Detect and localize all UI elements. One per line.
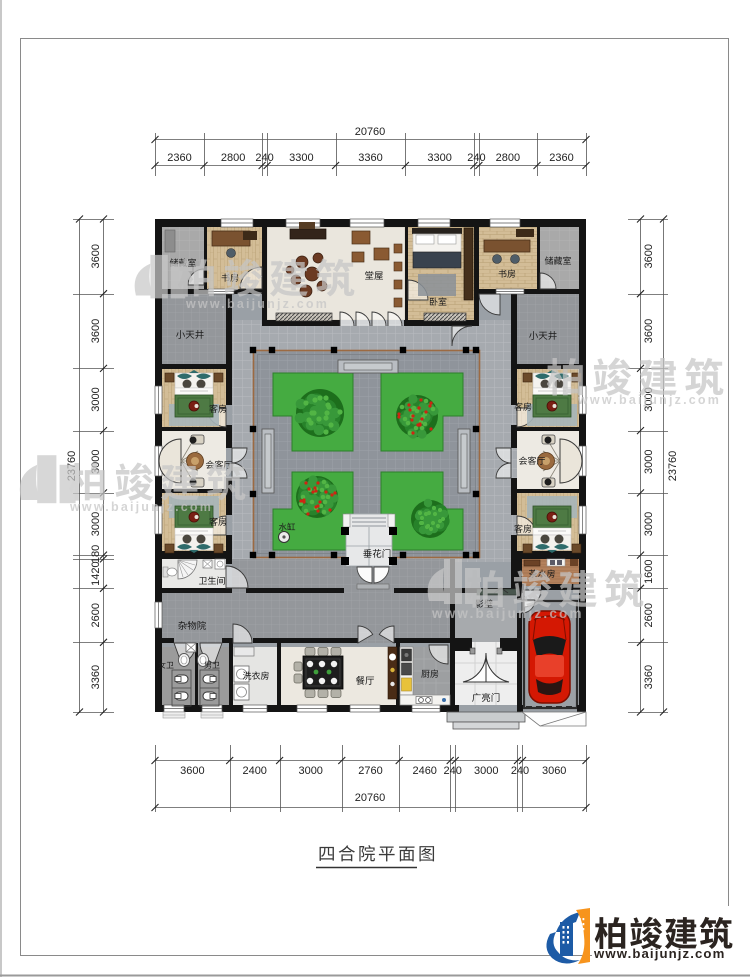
- svg-text:2600: 2600: [643, 603, 655, 627]
- svg-text:23760: 23760: [667, 451, 679, 482]
- svg-text:2800: 2800: [221, 152, 245, 164]
- svg-text:3600: 3600: [643, 244, 655, 268]
- svg-text:3300: 3300: [427, 152, 451, 164]
- svg-text:2760: 2760: [358, 765, 382, 777]
- svg-text:240: 240: [444, 765, 462, 777]
- svg-text:3600: 3600: [90, 319, 102, 343]
- svg-text:20760: 20760: [355, 792, 386, 804]
- svg-text:3000: 3000: [90, 512, 102, 536]
- svg-text:2360: 2360: [549, 152, 573, 164]
- svg-text:3360: 3360: [643, 665, 655, 689]
- svg-text:3300: 3300: [289, 152, 313, 164]
- svg-text:240: 240: [511, 765, 529, 777]
- svg-text:3600: 3600: [643, 319, 655, 343]
- svg-text:1600: 1600: [643, 559, 655, 583]
- svg-text:3000: 3000: [298, 765, 322, 777]
- svg-text:3060: 3060: [542, 765, 566, 777]
- svg-text:3000: 3000: [90, 387, 102, 411]
- svg-text:20760: 20760: [355, 126, 386, 138]
- svg-text:www.baijunjz.com: www.baijunjz.com: [185, 297, 329, 311]
- svg-text:www.baijunjz.com: www.baijunjz.com: [431, 606, 584, 621]
- svg-text:2600: 2600: [90, 603, 102, 627]
- svg-text:2800: 2800: [496, 152, 520, 164]
- svg-text:3600: 3600: [180, 765, 204, 777]
- svg-text:3000: 3000: [643, 512, 655, 536]
- svg-text:3600: 3600: [90, 244, 102, 268]
- svg-text:1420: 1420: [90, 561, 102, 585]
- svg-text:2460: 2460: [412, 765, 436, 777]
- svg-text:3360: 3360: [90, 665, 102, 689]
- svg-text:3000: 3000: [474, 765, 498, 777]
- svg-text:2400: 2400: [242, 765, 266, 777]
- svg-text:240: 240: [467, 152, 485, 164]
- svg-text:3360: 3360: [358, 152, 382, 164]
- svg-text:www.baijunjz.com: www.baijunjz.com: [69, 500, 213, 514]
- svg-text:www.baijunjz.com: www.baijunjz.com: [593, 946, 725, 961]
- svg-text:180: 180: [90, 545, 102, 563]
- svg-text:240: 240: [255, 152, 273, 164]
- svg-text:3000: 3000: [643, 450, 655, 474]
- svg-text:2360: 2360: [167, 152, 191, 164]
- svg-text:www.baijunjz.com: www.baijunjz.com: [577, 393, 721, 407]
